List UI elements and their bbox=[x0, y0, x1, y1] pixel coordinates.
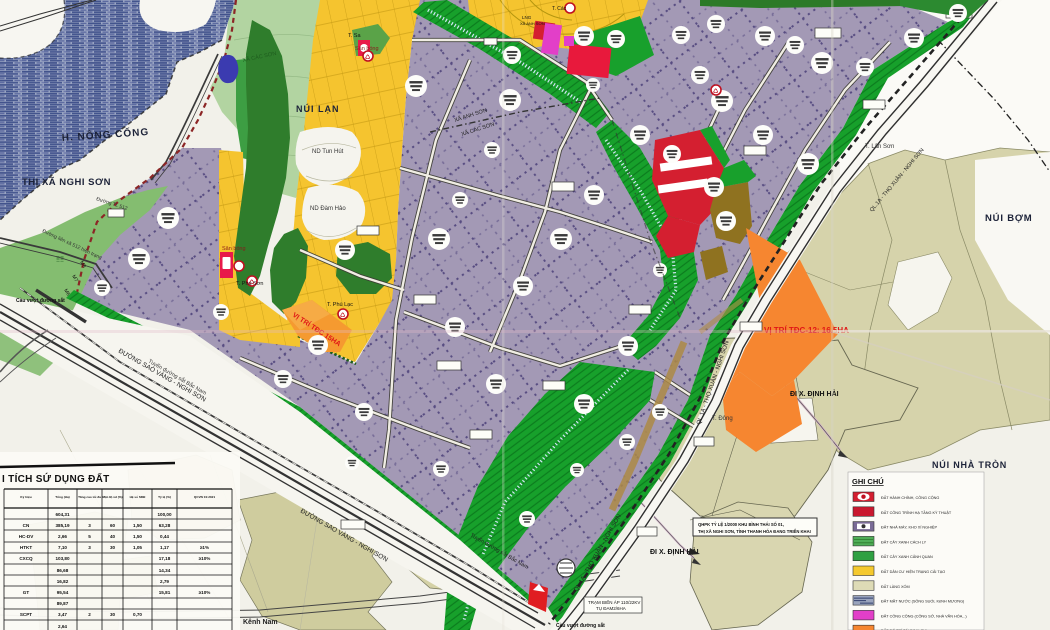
svg-text:1,17: 1,17 bbox=[160, 545, 169, 550]
svg-text:ĐẤT CÔNG CỘNG (CÔNG SỞ, NHÀ VĂ: ĐẤT CÔNG CỘNG (CÔNG SỞ, NHÀ VĂN HÓA...) bbox=[881, 613, 967, 618]
svg-text:GT: GT bbox=[23, 590, 30, 595]
svg-text:2,64: 2,64 bbox=[58, 624, 67, 629]
svg-text:≥1%: ≥1% bbox=[200, 545, 209, 550]
svg-text:Sân bóng: Sân bóng bbox=[222, 246, 246, 252]
svg-text:T. Phú Sơn: T. Phú Sơn bbox=[236, 281, 263, 287]
svg-text:103,80: 103,80 bbox=[55, 556, 69, 561]
svg-text:ND Tun Hút: ND Tun Hút bbox=[312, 149, 344, 155]
svg-text:HTKT: HTKT bbox=[20, 545, 32, 550]
svg-text:♺: ♺ bbox=[713, 88, 719, 95]
svg-text:5: 5 bbox=[88, 534, 91, 539]
svg-text:TRẠM BIẾN ÁP 110/22KV: TRẠM BIẾN ÁP 110/22KV bbox=[588, 599, 640, 605]
svg-text:ĐẤT CÔNG TRÌNH HẠ TẦNG KỲ THUẬ: ĐẤT CÔNG TRÌNH HẠ TẦNG KỲ THUẬT bbox=[881, 510, 952, 515]
svg-text:Kênh Nam: Kênh Nam bbox=[243, 619, 278, 626]
svg-text:2,79: 2,79 bbox=[160, 579, 169, 584]
svg-text:XÃ ANH SƠN: XÃ ANH SƠN bbox=[520, 21, 545, 26]
svg-text:40: 40 bbox=[110, 534, 116, 539]
svg-text:89,87: 89,87 bbox=[57, 601, 69, 606]
svg-text:17,18: 17,18 bbox=[159, 556, 171, 561]
svg-text:63,28: 63,28 bbox=[159, 523, 171, 528]
svg-text:2: 2 bbox=[88, 612, 91, 617]
svg-text:Tổng (Ha): Tổng (Ha) bbox=[55, 495, 69, 499]
svg-text:30: 30 bbox=[110, 612, 116, 617]
svg-text:604,31: 604,31 bbox=[55, 512, 69, 517]
svg-text:0,70: 0,70 bbox=[133, 612, 142, 617]
svg-text:QCVN 01:2021: QCVN 01:2021 bbox=[194, 495, 215, 499]
svg-text:CXCQ: CXCQ bbox=[19, 556, 33, 561]
svg-text:THỊ XÃ NGHI SƠN: THỊ XÃ NGHI SƠN bbox=[22, 177, 111, 188]
svg-text:NÚI LẠN: NÚI LẠN bbox=[296, 103, 340, 114]
svg-text:ĐẤT MẶT NƯỚC (SÔNG SUỐI, KêNH: ĐẤT MẶT NƯỚC (SÔNG SUỐI, KêNH MƯƠNG) bbox=[881, 599, 965, 604]
svg-text:T. Sa: T. Sa bbox=[348, 33, 361, 39]
svg-text:SCPT: SCPT bbox=[20, 612, 32, 617]
svg-text:3,47: 3,47 bbox=[58, 612, 67, 617]
svg-text:86,68: 86,68 bbox=[57, 568, 69, 573]
svg-text:14,34: 14,34 bbox=[159, 568, 171, 573]
svg-text:0,44: 0,44 bbox=[160, 534, 169, 539]
svg-text:ĐẤT HÀNH CHÍNH, CÔNG CỘNG: ĐẤT HÀNH CHÍNH, CÔNG CỘNG bbox=[881, 495, 939, 500]
svg-text:Hệ số SDĐ: Hệ số SDĐ bbox=[130, 495, 147, 499]
svg-text:≥10%: ≥10% bbox=[199, 590, 211, 595]
svg-text:30: 30 bbox=[110, 545, 116, 550]
svg-text:3: 3 bbox=[88, 545, 91, 550]
svg-text:100,00: 100,00 bbox=[157, 512, 171, 517]
svg-text:T. Lân Sơn: T. Lân Sơn bbox=[865, 144, 894, 150]
svg-text:QHPK TỶ LỆ 1/2000 KHU BÌNH THÁ: QHPK TỶ LỆ 1/2000 KHU BÌNH THÁI SỐ 01, bbox=[698, 522, 784, 527]
svg-text:♺: ♺ bbox=[365, 54, 371, 61]
svg-text:♺: ♺ bbox=[340, 312, 346, 319]
svg-text:LNG: LNG bbox=[522, 15, 532, 20]
svg-text:95,54: 95,54 bbox=[57, 590, 69, 595]
svg-text:ND Đàm Hảo: ND Đàm Hảo bbox=[310, 206, 346, 212]
svg-text:T. Phú Lạc: T. Phú Lạc bbox=[327, 302, 353, 308]
svg-text:7,10: 7,10 bbox=[58, 545, 67, 550]
svg-text:60: 60 bbox=[110, 523, 116, 528]
svg-text:ĐẤT CÂY XANH CÁCH LY: ĐẤT CÂY XANH CÁCH LY bbox=[881, 539, 927, 544]
svg-text:Ký hiệu: Ký hiệu bbox=[20, 495, 31, 499]
svg-text:ĐẤT NHÀ MÁY, KHO XÍ NGHIỆP: ĐẤT NHÀ MÁY, KHO XÍ NGHIỆP bbox=[881, 525, 937, 530]
svg-text:NÚI BỢM: NÚI BỢM bbox=[985, 212, 1032, 224]
svg-text:ĐẤT LÀNG XÓM: ĐẤT LÀNG XÓM bbox=[881, 584, 910, 589]
svg-text:ĐẤT CÂY XANH CẢNH QUAN: ĐẤT CÂY XANH CẢNH QUAN bbox=[881, 554, 933, 559]
svg-text:CN: CN bbox=[23, 523, 30, 528]
svg-text:Cầu vượt đường sắt: Cầu vượt đường sắt bbox=[16, 297, 65, 304]
svg-text:T. Đông: T. Đông bbox=[712, 416, 733, 422]
svg-text:Tầng cao tối đa: Tầng cao tối đa bbox=[78, 495, 101, 499]
svg-text:1,50: 1,50 bbox=[133, 523, 142, 528]
svg-text:≥10%: ≥10% bbox=[199, 556, 211, 561]
svg-text:I TÍCH SỨ DỤNG ĐẤT: I TÍCH SỨ DỤNG ĐẤT bbox=[2, 472, 110, 485]
svg-text:THỊ XÃ NGHI SƠN, TỈNH THANH HÓ: THỊ XÃ NGHI SƠN, TỈNH THANH HÓA ĐANG TRI… bbox=[698, 529, 811, 534]
svg-text:1,50: 1,50 bbox=[133, 534, 142, 539]
svg-text:1,05: 1,05 bbox=[133, 545, 142, 550]
svg-text:TỤ ĐAM2/6HA: TỤ ĐAM2/6HA bbox=[596, 606, 626, 611]
svg-text:15,81: 15,81 bbox=[159, 590, 171, 595]
svg-text:3: 3 bbox=[88, 523, 91, 528]
svg-text:Sân bóng: Sân bóng bbox=[355, 46, 379, 52]
svg-text:16,82: 16,82 bbox=[57, 579, 69, 584]
svg-text:2,66: 2,66 bbox=[58, 534, 67, 539]
svg-text:385,19: 385,19 bbox=[55, 523, 69, 528]
svg-text:Cầu vượt đường sắt: Cầu vượt đường sắt bbox=[556, 622, 605, 629]
svg-text:ĐẤT DÂN CƯ HIỆN TRẠNG CẢI TẠO: ĐẤT DÂN CƯ HIỆN TRẠNG CẢI TẠO bbox=[881, 569, 945, 574]
svg-text:GHI CHÚ: GHI CHÚ bbox=[852, 477, 884, 486]
svg-text:Mật độ xd (%): Mật độ xd (%) bbox=[102, 495, 122, 499]
svg-text:T. Các: T. Các bbox=[552, 6, 567, 12]
svg-text:Tỷ lệ (%): Tỷ lệ (%) bbox=[158, 495, 171, 499]
svg-text:NÚI NHÀ TRÒN: NÚI NHÀ TRÒN bbox=[932, 459, 1007, 470]
svg-text:HC-DV: HC-DV bbox=[19, 534, 34, 539]
